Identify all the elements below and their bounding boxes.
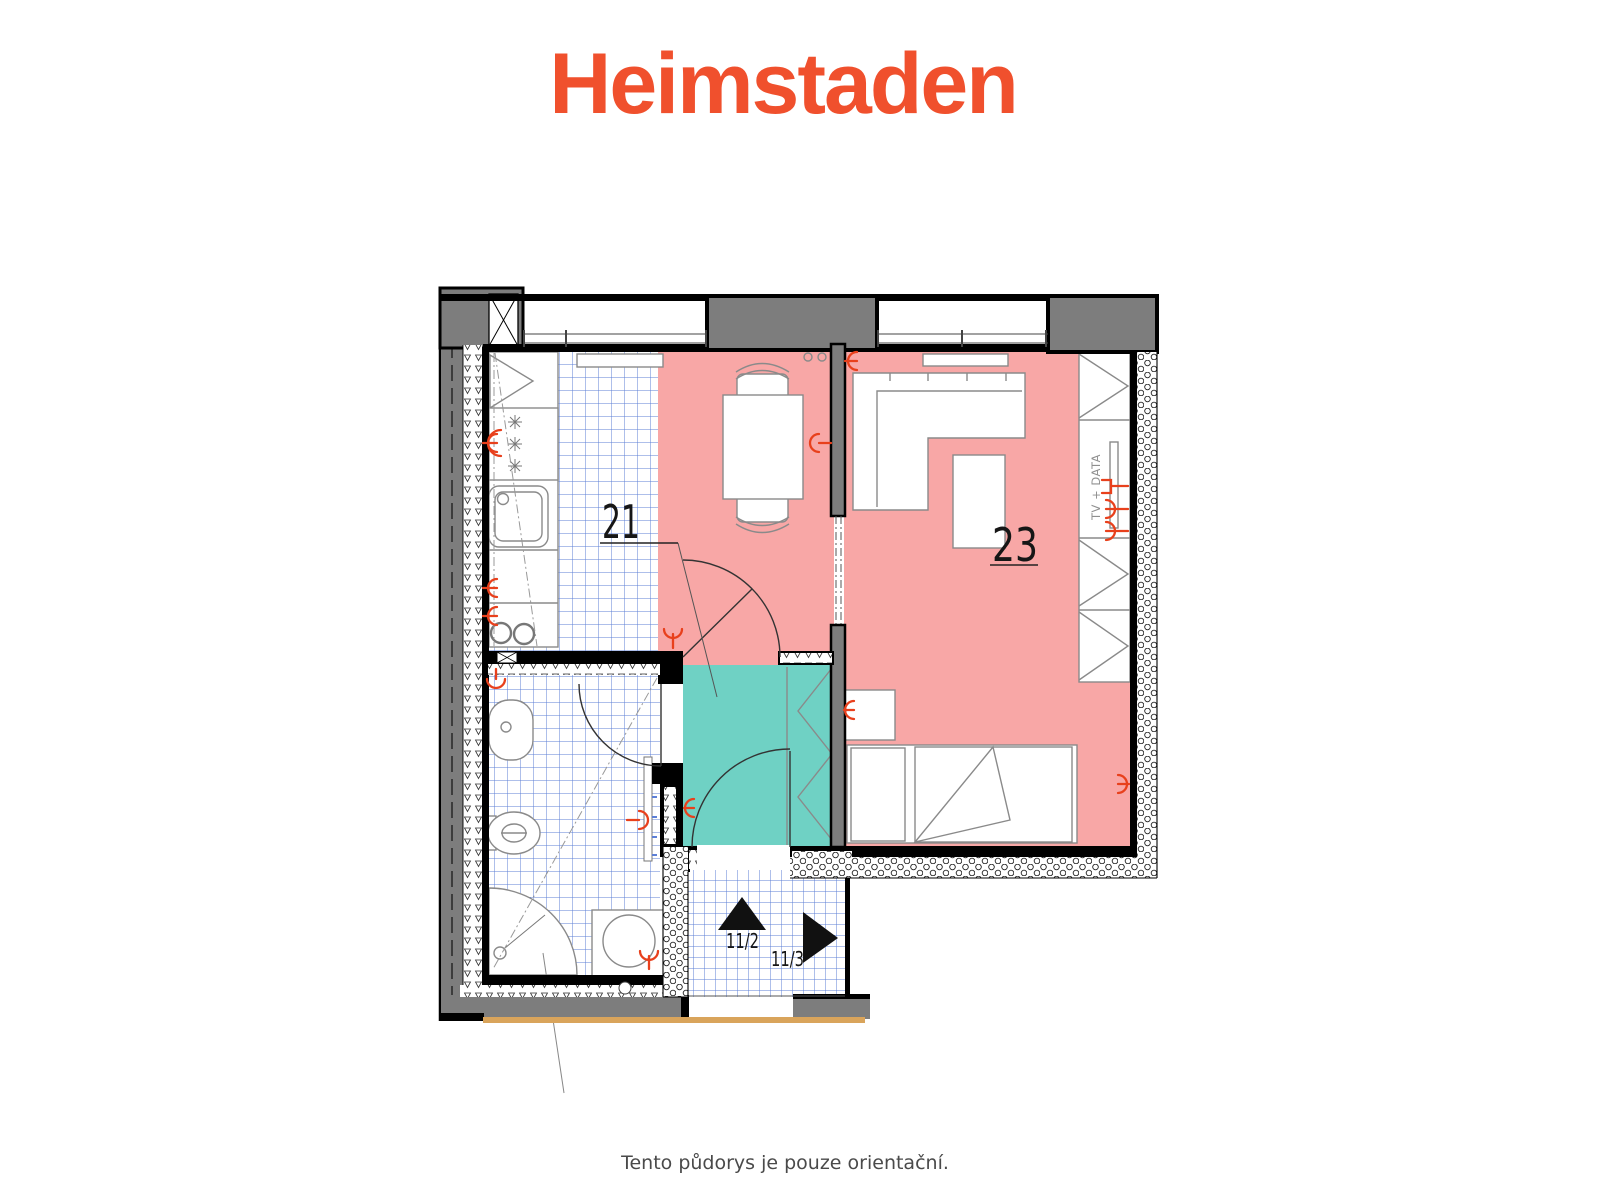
range-hood xyxy=(577,354,663,367)
room-23-label: 23 xyxy=(992,518,1038,572)
wall-block-top-right xyxy=(1048,296,1157,352)
burner-icon xyxy=(508,415,522,429)
insulation-left xyxy=(463,345,482,992)
stove xyxy=(489,408,558,480)
bath-bottom-wall xyxy=(482,975,663,985)
nightstand xyxy=(845,690,895,740)
dining-table xyxy=(723,395,803,499)
washbasin xyxy=(489,700,533,760)
insulation-bath-bottom xyxy=(460,985,663,997)
open-passage xyxy=(836,516,841,625)
tv-data-label: TV + DATA xyxy=(1089,454,1103,521)
window-pillar xyxy=(707,296,877,350)
hallway-floor xyxy=(683,665,832,848)
disclaimer-text: Tento půdorys je pouze orientační. xyxy=(620,1152,949,1174)
insulation-bottom xyxy=(790,857,1157,878)
bed xyxy=(847,745,1077,843)
pipe-icon xyxy=(619,982,631,994)
wall-edge xyxy=(440,1013,484,1021)
insulation-patch xyxy=(792,851,852,859)
brand-logo: Heimstaden xyxy=(549,36,1017,132)
partition-wall-21-23 xyxy=(831,344,845,516)
floor-plan-image: Heimstaden xyxy=(0,0,1600,1200)
insulation-patch xyxy=(689,850,697,869)
wall-block-bottom-right xyxy=(793,999,870,1019)
corridor-right-wall xyxy=(845,870,850,997)
burner-icon xyxy=(508,437,522,451)
insulation-right xyxy=(1137,352,1157,857)
exterior-wall-right xyxy=(1130,352,1137,857)
insulation-corridor-left xyxy=(663,847,688,997)
wall-shelf xyxy=(923,354,1008,366)
insulation-strip xyxy=(664,787,676,844)
radiator xyxy=(644,757,652,861)
floor-threshold-line xyxy=(483,1017,865,1023)
insulation-strip xyxy=(780,653,832,663)
corridor-label-11-3: 11/3 xyxy=(771,947,804,971)
entrance-opening xyxy=(697,845,790,858)
corridor-label-11-2: 11/2 xyxy=(726,929,759,953)
bath-door-stub-top xyxy=(658,664,683,684)
insulation-bath-top xyxy=(488,664,660,675)
room-21-label: 21 xyxy=(602,495,640,549)
